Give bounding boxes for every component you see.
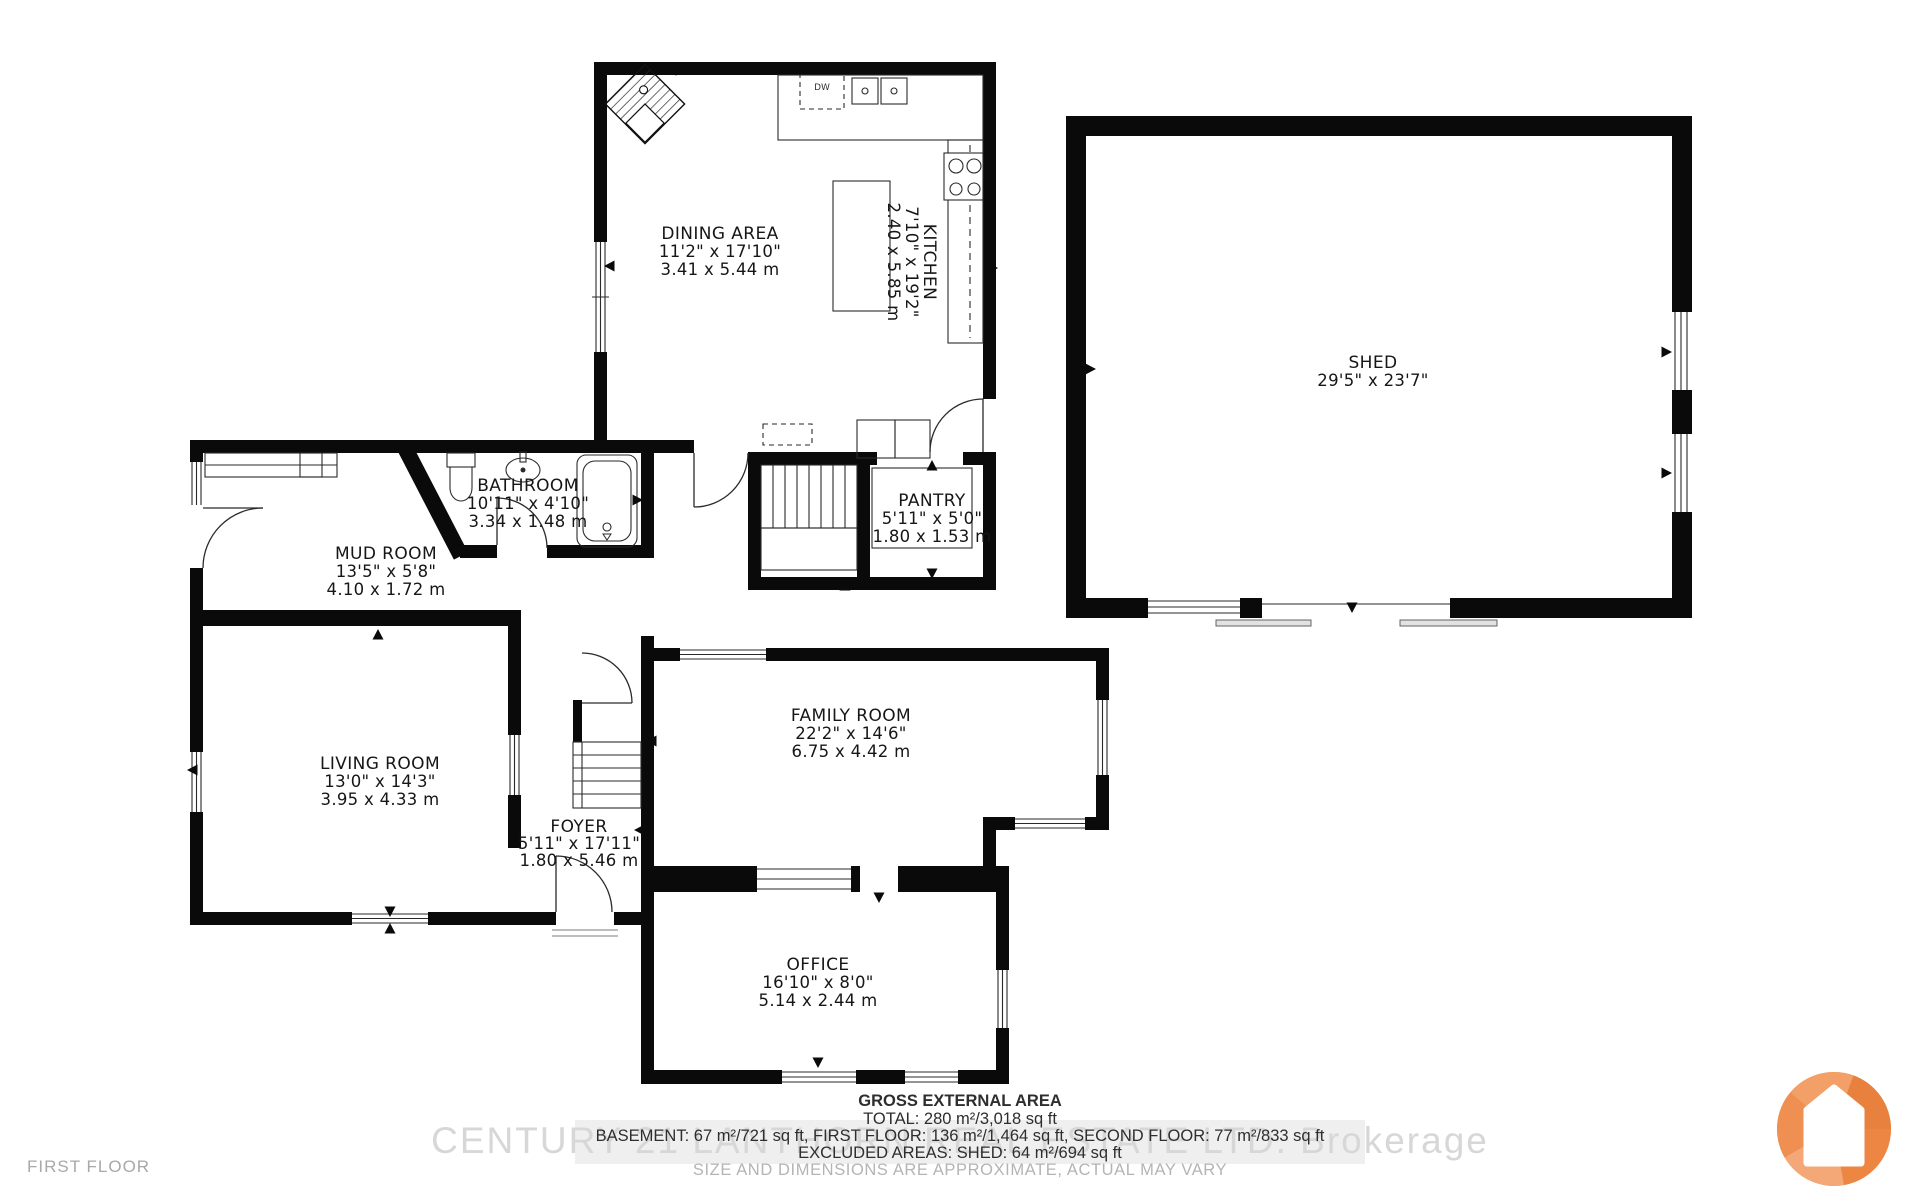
stove-icon [944,153,983,200]
svg-text:BATHROOM: BATHROOM [477,476,579,496]
svg-text:13'5" x 5'8": 13'5" x 5'8" [336,562,437,581]
kitchen-sink-icon [852,78,907,104]
window-family-office [757,864,851,894]
window-dining-left [592,242,609,352]
label-shed: SHED 29'5" x 23'7" [1317,353,1428,390]
gross-area-title: GROSS EXTERNAL AREA [858,1092,1062,1110]
dishwasher: DW [800,75,844,109]
svg-text:1.80 x 1.53 m: 1.80 x 1.53 m [873,527,992,546]
svg-text:OFFICE: OFFICE [787,955,850,975]
excluded-areas: EXCLUDED AREAS: SHED: 64 m²/694 sq ft [798,1144,1122,1162]
window-living-left [188,752,205,812]
door-dining-hall [694,453,748,507]
fireplace-icon [605,64,684,143]
svg-text:3.34 x 1.48 m: 3.34 x 1.48 m [469,512,588,531]
svg-text:MUD ROOM: MUD ROOM [335,544,437,564]
house-walls [190,62,1109,1084]
label-dining-area: DINING AREA 11'2" x 17'10" 3.41 x 5.44 m [659,224,781,279]
svg-text:LIVING ROOM: LIVING ROOM [320,754,440,774]
label-family-room: FAMILY ROOM 22'2" x 14'6" 6.75 x 4.42 m [791,706,911,761]
window-office-right [994,970,1011,1028]
door-kitchen [930,399,983,452]
door-foyer-top [582,653,632,703]
svg-text:KITCHEN: KITCHEN [919,224,939,300]
stairs-foyer [573,742,641,808]
svg-text:DINING AREA: DINING AREA [661,224,778,244]
svg-text:5'11" x 5'0": 5'11" x 5'0" [882,509,983,528]
window-family-top [680,646,766,663]
window-mudroom-left [188,462,205,505]
window-shed-right-1 [1670,312,1692,390]
logo-house-icon [1807,1088,1861,1163]
svg-text:2.40 x 5.85 m: 2.40 x 5.85 m [884,203,903,322]
svg-text:PANTRY: PANTRY [898,491,966,511]
svg-text:13'0" x 14'3": 13'0" x 14'3" [324,772,435,791]
diagonal-wall [404,446,461,556]
label-mud-room: MUD ROOM 13'5" x 5'8" 4.10 x 1.72 m [327,544,446,599]
window-office-bottom-1 [782,1068,856,1086]
mudroom-closet [205,453,337,477]
svg-text:4.10 x 1.72 m: 4.10 x 1.72 m [327,580,446,599]
windows [188,242,1692,1086]
total-area: TOTAL: 280 m²/3,018 sq ft [863,1110,1057,1128]
label-kitchen: KITCHEN 7'10" x 19'2" 2.40 x 5.85 m [884,203,939,322]
window-family-ext-bottom [1015,815,1085,832]
window-family-right [1094,700,1111,775]
kitchen-fixtures: DW [763,75,983,458]
svg-text:22'2" x 14'6": 22'2" x 14'6" [795,724,906,743]
svg-text:10'11" x 4'10": 10'11" x 4'10" [467,494,589,513]
kitchen-island [833,181,890,311]
svg-text:11'2" x 17'10": 11'2" x 17'10" [659,242,781,261]
brand-logo [1777,1072,1891,1186]
svg-text:5.14 x 2.44 m: 5.14 x 2.44 m [759,991,878,1010]
dishwasher-label: DW [814,83,830,93]
svg-text:FAMILY ROOM: FAMILY ROOM [791,706,911,726]
label-living-room: LIVING ROOM 13'0" x 14'3" 3.95 x 4.33 m [320,754,440,809]
svg-text:6.75 x 4.42 m: 6.75 x 4.42 m [792,742,911,761]
disclaimer: SIZE AND DIMENSIONS ARE APPROXIMATE, ACT… [693,1161,1227,1179]
window-office-bottom-2 [905,1068,958,1086]
label-office: OFFICE 16'10" x 8'0" 5.14 x 2.44 m [759,955,878,1010]
label-foyer: FOYER 5'11" x 17'11" 1.80 x 5.46 m [518,817,640,870]
floor-areas: BASEMENT: 67 m²/721 sq ft, FIRST FLOOR: … [596,1127,1325,1145]
svg-text:29'5" x 23'7": 29'5" x 23'7" [1317,371,1428,390]
svg-text:7'10" x 19'2": 7'10" x 19'2" [902,206,921,317]
window-living-right [506,735,523,795]
stairs-main [761,465,857,570]
svg-text:3.41 x 5.44 m: 3.41 x 5.44 m [661,260,780,279]
floorplan-page: DW [0,0,1920,1200]
svg-text:1.80 x 5.46 m: 1.80 x 5.46 m [520,851,639,870]
svg-text:16'10" x 8'0": 16'10" x 8'0" [762,973,873,992]
label-bathroom: BATHROOM 10'11" x 4'10" 3.34 x 1.48 m [467,476,589,531]
floor-label: FIRST FLOOR [27,1157,150,1176]
label-pantry: PANTRY 5'11" x 5'0" 1.80 x 1.53 m [873,491,992,546]
floorplan-drawing: DW [0,0,1920,1200]
svg-text:SHED: SHED [1348,353,1397,373]
footer: CENTURY 21 LANTHORN REAL ESTATE LTD. Bro… [27,1092,1489,1179]
window-shed-bottom [1148,596,1240,618]
window-shed-right-2 [1670,434,1692,512]
door-mudroom [188,505,263,568]
svg-text:3.95 x 4.33 m: 3.95 x 4.33 m [321,790,440,809]
